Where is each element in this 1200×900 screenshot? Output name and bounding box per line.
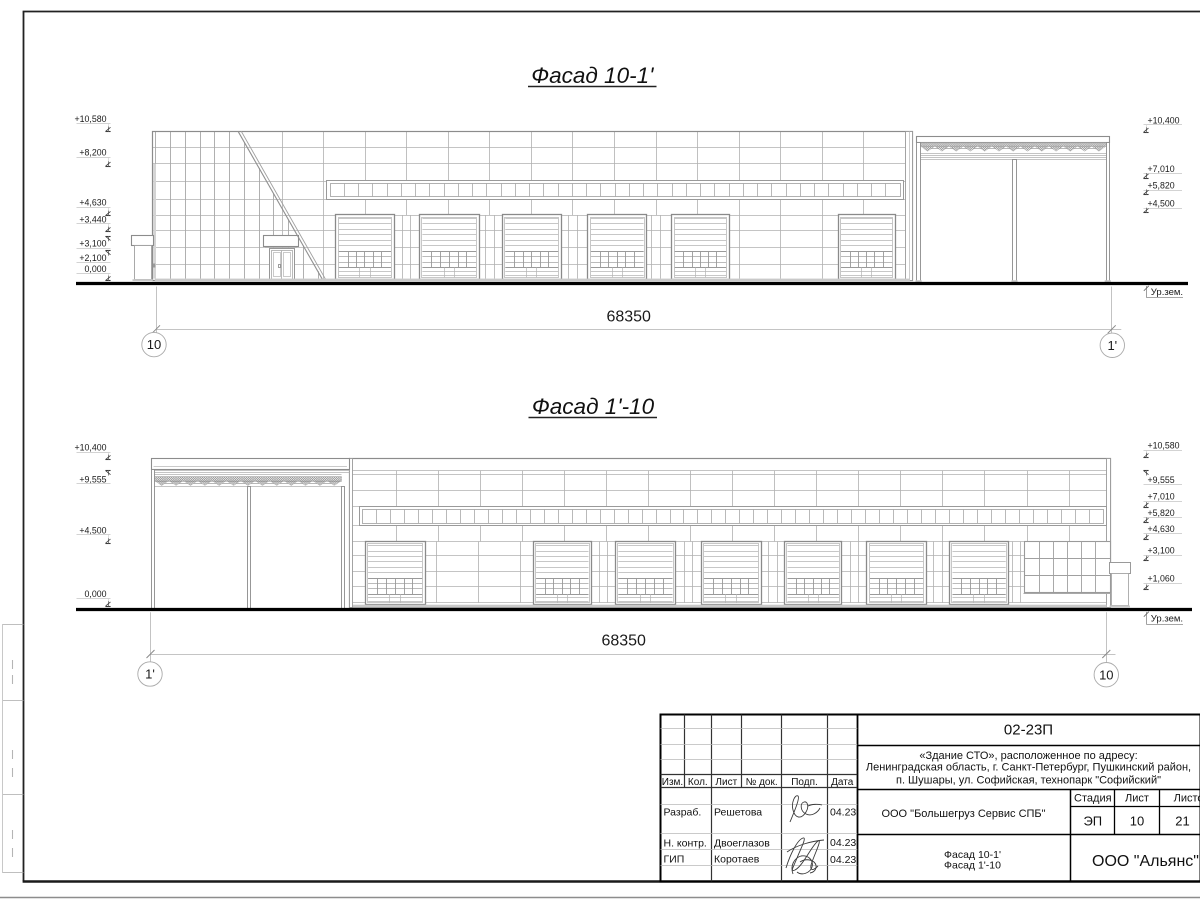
svg-text:Листов: Листов bbox=[1174, 793, 1200, 805]
svg-text:+5,820: +5,820 bbox=[1148, 508, 1175, 518]
svg-text:+7,010: +7,010 bbox=[1148, 492, 1175, 502]
svg-text:Стадия: Стадия bbox=[1074, 793, 1112, 805]
svg-text:Изм.: Изм. bbox=[662, 777, 683, 788]
svg-text:Подп.: Подп. bbox=[791, 777, 818, 788]
svg-text:+10,400: +10,400 bbox=[74, 443, 106, 453]
svg-text:04.23: 04.23 bbox=[830, 854, 856, 866]
svg-text:68350: 68350 bbox=[601, 633, 646, 650]
svg-text:1': 1' bbox=[1107, 338, 1117, 353]
svg-text:+4,630: +4,630 bbox=[1148, 524, 1175, 534]
svg-text:Лист: Лист bbox=[715, 777, 737, 788]
svg-text:Лист: Лист bbox=[1125, 793, 1149, 805]
svg-text:Ур.зем.: Ур.зем. bbox=[1151, 287, 1183, 298]
svg-text:+1,060: +1,060 bbox=[1148, 574, 1175, 584]
svg-text:0,000: 0,000 bbox=[84, 589, 106, 599]
svg-text:ГИП: ГИП bbox=[664, 853, 685, 865]
svg-text:0,000: 0,000 bbox=[84, 264, 106, 274]
svg-text:+7,010: +7,010 bbox=[1148, 164, 1175, 174]
svg-text:ООО "Альянс": ООО "Альянс" bbox=[1092, 853, 1199, 870]
svg-text:+8,200: +8,200 bbox=[79, 148, 106, 158]
svg-text:+3,100: +3,100 bbox=[79, 239, 106, 249]
svg-text:04.23: 04.23 bbox=[830, 837, 856, 849]
svg-text:21: 21 bbox=[1175, 814, 1189, 829]
svg-text:Кол.: Кол. bbox=[688, 777, 708, 788]
svg-text:04.23: 04.23 bbox=[830, 807, 856, 819]
svg-text:ЭП: ЭП bbox=[1083, 814, 1102, 829]
svg-text:+4,500: +4,500 bbox=[79, 525, 106, 535]
svg-text:«Здание СТО», расположенное по: «Здание СТО», расположенное по адресу: bbox=[919, 750, 1137, 762]
svg-text:+3,100: +3,100 bbox=[1148, 546, 1175, 556]
svg-text:10: 10 bbox=[147, 337, 161, 352]
svg-text:п. Шушары, ул. Софийская, техн: п. Шушары, ул. Софийская, технопарк "Соф… bbox=[896, 775, 1161, 787]
svg-text:Коротаев: Коротаев bbox=[714, 853, 760, 865]
svg-text:Фасад 1'-10: Фасад 1'-10 bbox=[944, 860, 1001, 872]
svg-text:+3,440: +3,440 bbox=[79, 214, 106, 224]
svg-text:Фасад 1'-10: Фасад 1'-10 bbox=[532, 394, 655, 419]
svg-text:+9,555: +9,555 bbox=[1148, 475, 1175, 485]
svg-text:1': 1' bbox=[145, 667, 155, 682]
svg-text:Н. контр.: Н. контр. bbox=[664, 837, 707, 849]
svg-text:Двоеглазов: Двоеглазов bbox=[714, 837, 770, 849]
svg-text:+2,100: +2,100 bbox=[79, 253, 106, 263]
svg-text:68350: 68350 bbox=[606, 309, 651, 326]
svg-text:+10,400: +10,400 bbox=[1148, 116, 1180, 126]
svg-text:+10,580: +10,580 bbox=[74, 114, 106, 124]
svg-text:Ленинградская область, г. Санк: Ленинградская область, г. Санкт-Петербур… bbox=[866, 762, 1191, 774]
svg-text:+4,500: +4,500 bbox=[1148, 199, 1175, 209]
svg-text:+5,820: +5,820 bbox=[1148, 181, 1175, 191]
svg-text:№ док.: № док. bbox=[746, 777, 778, 788]
svg-text:Фасад 10-1': Фасад 10-1' bbox=[531, 63, 654, 88]
svg-text:10: 10 bbox=[1130, 814, 1144, 829]
svg-text:ООО "Большегруз Сервис СПБ": ООО "Большегруз Сервис СПБ" bbox=[881, 808, 1045, 820]
svg-text:+9,555: +9,555 bbox=[79, 474, 106, 484]
svg-text:Разраб.: Разраб. bbox=[664, 807, 702, 819]
svg-text:Ур.зем.: Ур.зем. bbox=[1151, 614, 1183, 625]
svg-text:Решетова: Решетова bbox=[714, 807, 762, 819]
svg-text:02-23П: 02-23П bbox=[1004, 722, 1053, 739]
svg-text:+10,580: +10,580 bbox=[1148, 441, 1180, 451]
svg-text:+4,630: +4,630 bbox=[79, 198, 106, 208]
svg-text:10: 10 bbox=[1099, 667, 1113, 682]
svg-text:Дата: Дата bbox=[831, 777, 854, 788]
